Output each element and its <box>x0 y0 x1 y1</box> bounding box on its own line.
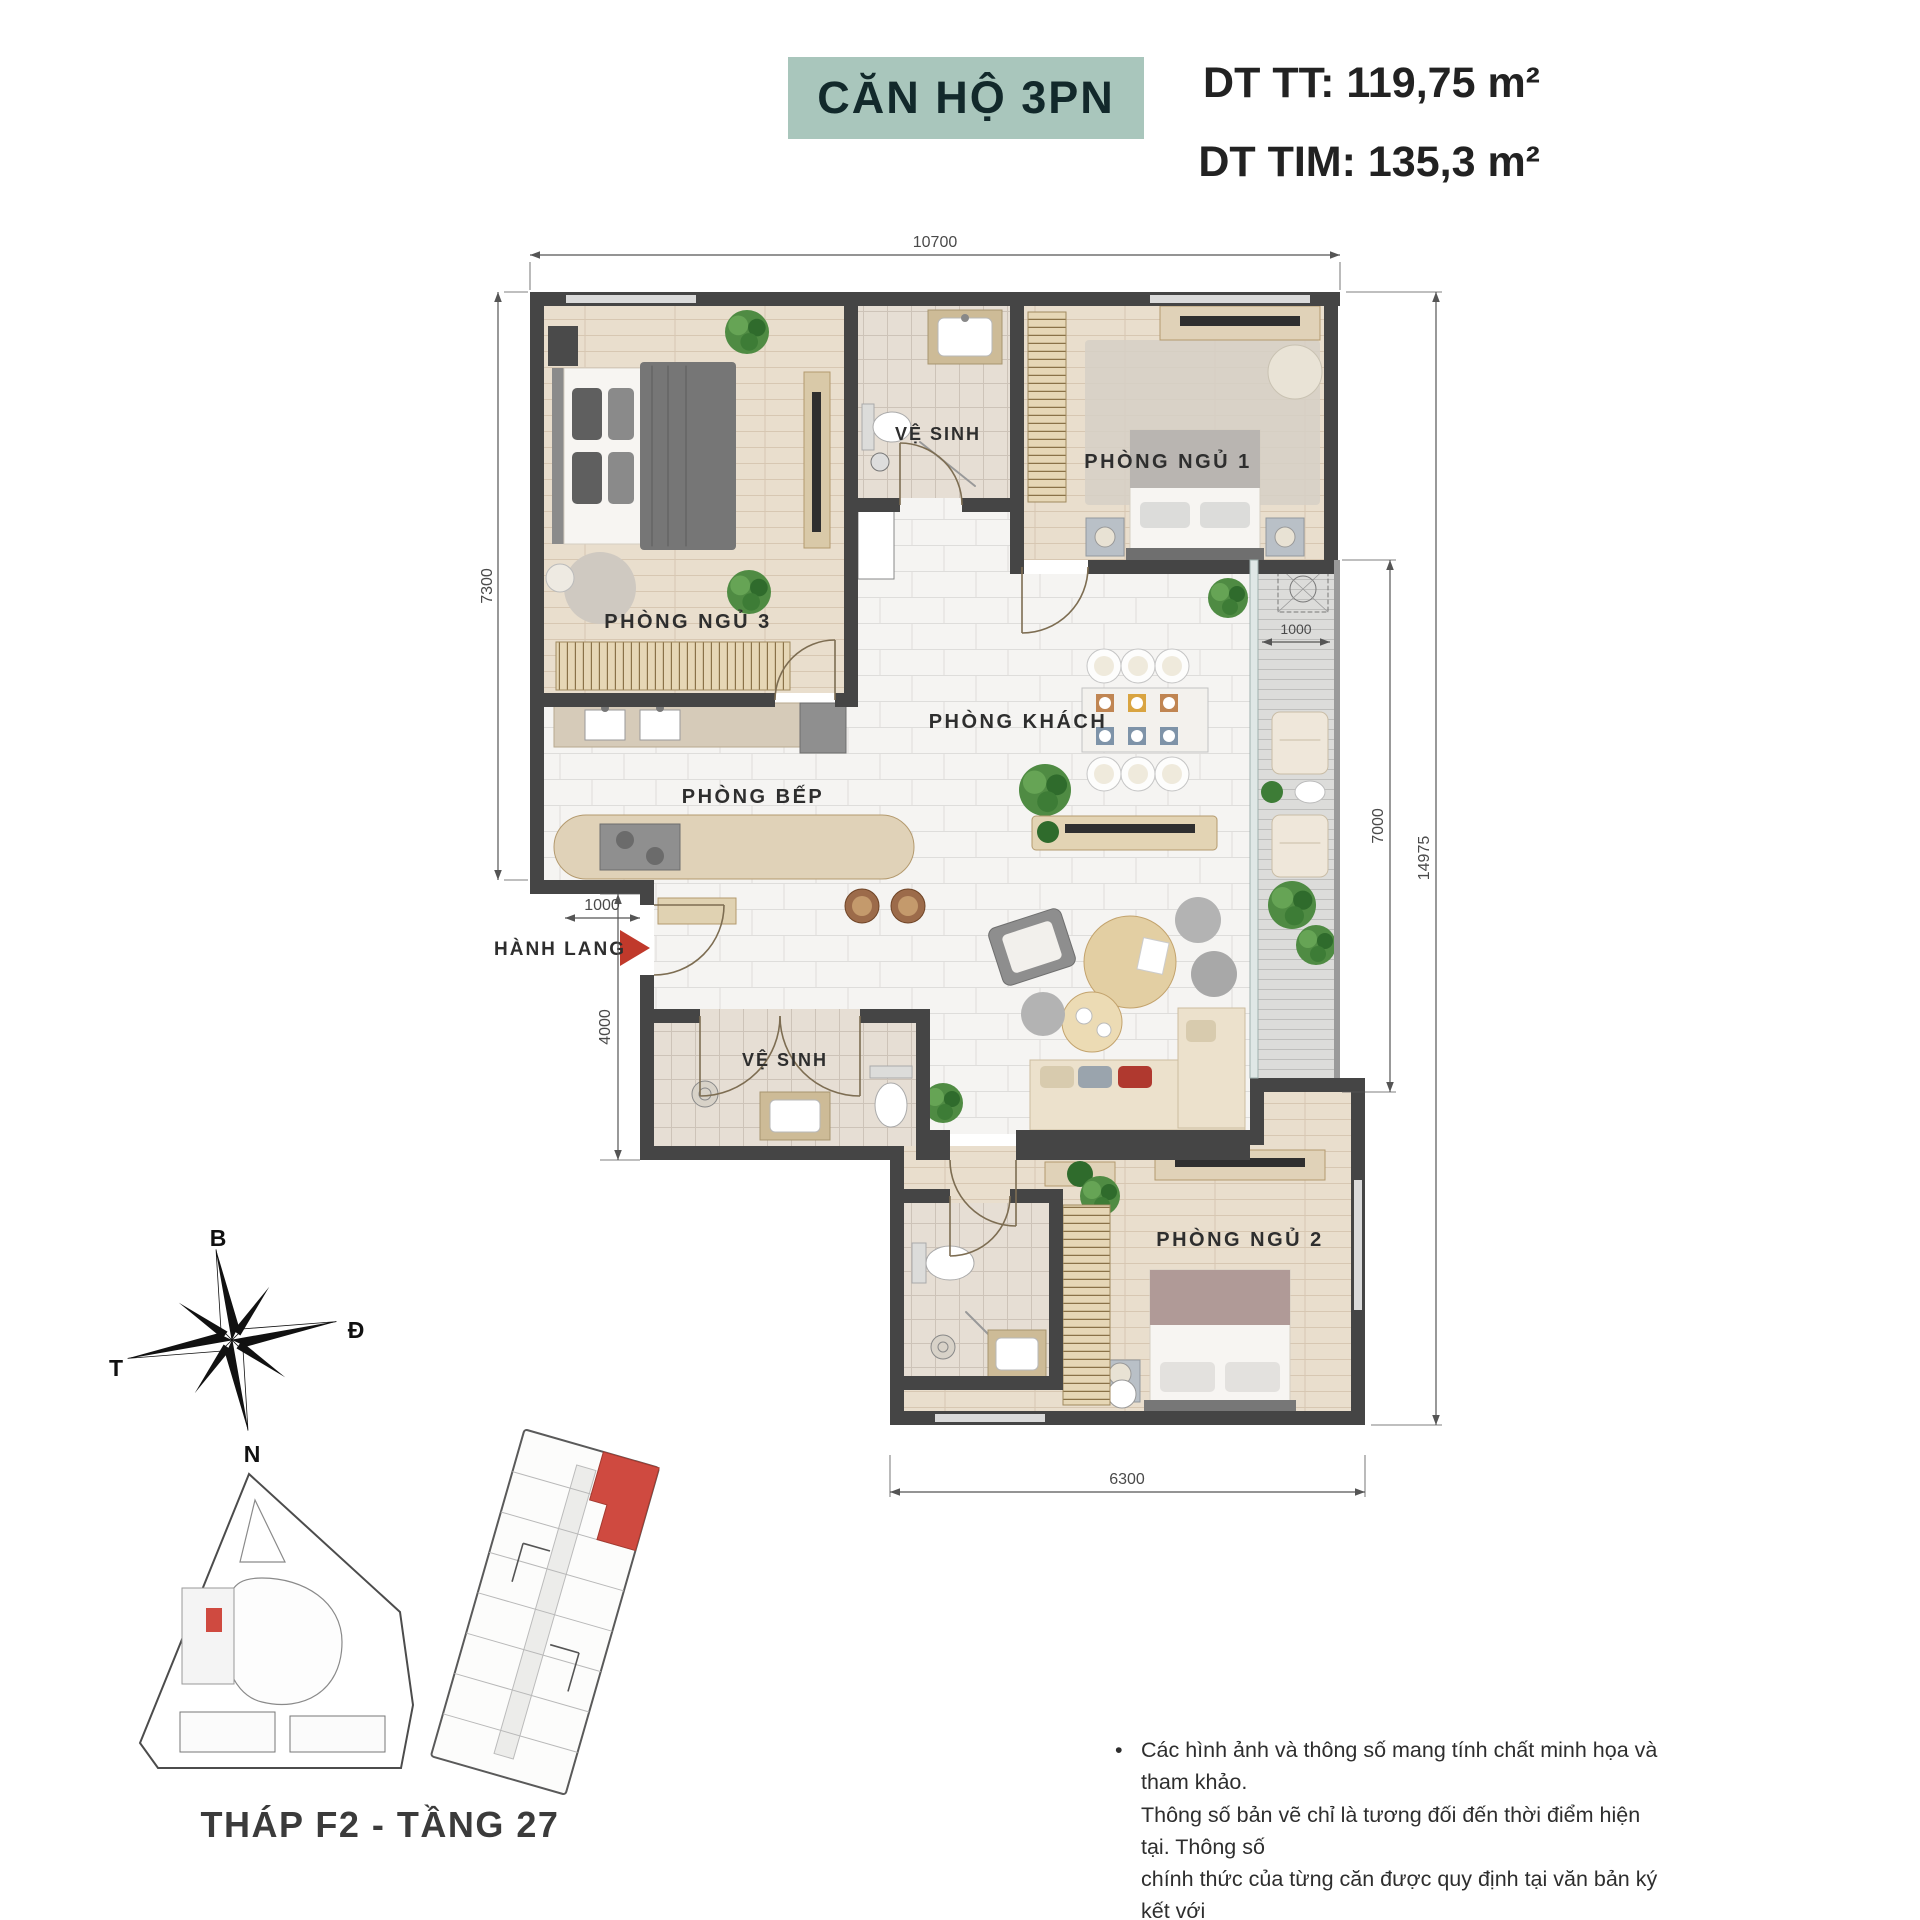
fridge <box>800 703 846 753</box>
sink-basin <box>996 1338 1038 1370</box>
burner <box>646 847 664 865</box>
label-bathroom2: VỆ SINH <box>742 1049 828 1070</box>
wall-art <box>548 326 578 366</box>
toilet-tank <box>862 404 874 450</box>
shower-drain <box>931 1335 955 1359</box>
plant <box>1208 578 1248 618</box>
disclaimer-text: Các hình ảnh và thông số mang tính chất … <box>1141 1734 1660 1920</box>
compass: B Đ T N <box>109 1225 364 1467</box>
pouf <box>1021 992 1065 1036</box>
wall-ensuite-bottom <box>904 1376 1063 1390</box>
wall-ensuite-right <box>1049 1189 1063 1390</box>
plant <box>727 570 771 614</box>
label-bedroom2: PHÒNG NGỦ 2 <box>1156 1227 1324 1251</box>
label-bedroom1: PHÒNG NGỦ 1 <box>1084 449 1252 473</box>
pillow <box>1078 1066 1112 1088</box>
bed1-headboard <box>1126 548 1264 560</box>
dim-balcony: 1000 <box>1280 621 1311 637</box>
tv <box>812 392 821 532</box>
compass-east: Đ <box>348 1317 365 1343</box>
wall-jog <box>1250 1078 1264 1145</box>
dim-left-upper: 7300 <box>479 568 496 604</box>
dim-top: 10700 <box>913 234 958 251</box>
wall-left-upper <box>530 292 544 894</box>
compass-rose <box>112 1231 353 1449</box>
toilet-tank <box>870 1066 912 1078</box>
pillow <box>1160 1362 1215 1392</box>
pouf <box>1191 951 1237 997</box>
side-table <box>1062 992 1122 1052</box>
bed1-wardrobe <box>1028 312 1066 502</box>
site-unit-highlight <box>206 1608 222 1632</box>
bed2-headboard <box>1144 1400 1296 1411</box>
floor-plan-drawing: PHÒNG NGỦ 3 VỆ SINH PHÒNG NGỦ 1 PHÒNG KH… <box>0 0 1920 1920</box>
wall-bed2-left <box>890 1146 904 1425</box>
plant <box>1268 881 1316 929</box>
cooktop <box>600 824 680 870</box>
page: CĂN HỘ 3PN DT TT: 119,75 m² DT TIM: 135,… <box>0 0 1920 1920</box>
dim-left-lower: 4000 <box>597 1009 614 1045</box>
site-building <box>180 1712 275 1752</box>
label-living: PHÒNG KHÁCH <box>929 709 1108 733</box>
pillow <box>1200 502 1250 528</box>
pillow <box>572 388 602 440</box>
kitchen-sink <box>640 710 680 740</box>
shaft <box>858 507 894 579</box>
dim-bottom: 6300 <box>1109 1471 1145 1488</box>
kitchen-sink <box>585 710 625 740</box>
compass-south: N <box>244 1441 261 1467</box>
disclaimer-line: chính thức của từng căn được quy định tạ… <box>1141 1863 1660 1920</box>
dim-left-hall: 1000 <box>584 897 620 914</box>
wall-left-lower <box>640 975 654 1160</box>
pillow <box>608 388 634 440</box>
pillow <box>1225 1362 1280 1392</box>
window <box>1150 295 1310 303</box>
bed3-lamp <box>546 564 574 592</box>
wall-bed3-right <box>844 292 858 707</box>
wall-bed3-bottom <box>835 693 858 707</box>
balcony-railing <box>1334 560 1340 1078</box>
site-plan <box>140 1429 659 1794</box>
plate <box>1076 1008 1092 1024</box>
wall-bottom-left <box>640 1146 904 1160</box>
disclaimer-bullet: • <box>1115 1734 1141 1920</box>
lounge-chair <box>1272 712 1328 774</box>
bed3-wardrobe <box>556 642 790 690</box>
faucet <box>961 314 969 322</box>
disclaimer-line: Thông số bản vẽ chỉ là tương đối đến thờ… <box>1141 1799 1660 1864</box>
window <box>1354 1180 1362 1310</box>
lounge-chair <box>1272 815 1328 877</box>
pillow <box>608 452 634 504</box>
window <box>566 295 696 303</box>
wall-bed3-bottom <box>544 693 775 707</box>
wall-bed1-bottom <box>1088 560 1338 574</box>
disclaimer: • Các hình ảnh và thông số mang tính chấ… <box>1115 1734 1660 1920</box>
bed2-blanket <box>1150 1270 1290 1325</box>
pillow <box>1140 502 1190 528</box>
wall-sofa <box>930 1130 950 1160</box>
label-bathroom1: VỆ SINH <box>895 423 981 444</box>
stool-seat <box>898 896 918 916</box>
compass-west: T <box>109 1355 123 1381</box>
dim-right-living: 7000 <box>1370 808 1387 844</box>
pillow <box>1040 1066 1074 1088</box>
tower-plate <box>431 1429 659 1794</box>
stool-seat <box>852 896 872 916</box>
wall-sofa <box>1016 1130 1250 1160</box>
decor-tray <box>1108 1380 1136 1408</box>
tv <box>1180 316 1300 326</box>
plant <box>1019 764 1071 816</box>
locator-caption: THÁP F2 - TẦNG 27 <box>170 1804 590 1846</box>
wall-balcony-bottom <box>1250 1078 1365 1092</box>
compass-north: B <box>210 1225 227 1251</box>
sink-basin <box>938 318 992 356</box>
wall-bath1-right <box>1010 292 1024 574</box>
plate <box>1097 1023 1111 1037</box>
plant <box>1296 925 1336 965</box>
dim-right-total: 14975 <box>1416 836 1433 881</box>
balcony-glass-wall <box>1250 560 1258 1078</box>
lamp <box>1275 527 1295 547</box>
sink-basin <box>770 1100 820 1132</box>
toilet-bowl <box>875 1083 907 1127</box>
site-building <box>290 1716 385 1752</box>
wall-bath2-top <box>654 1009 700 1023</box>
balcony-table <box>1295 781 1325 803</box>
wall-left-lower <box>640 880 654 905</box>
pouf <box>1268 345 1322 399</box>
toilet-tank <box>912 1243 926 1283</box>
plant <box>725 310 769 354</box>
pouf <box>1175 897 1221 943</box>
bed2-wardrobe <box>1063 1205 1110 1405</box>
lamp <box>1095 527 1115 547</box>
wall-bath2-right <box>916 1009 930 1160</box>
pillow <box>1186 1020 1216 1042</box>
site-tower-block <box>182 1588 234 1684</box>
bed3-blanket <box>640 362 736 550</box>
window <box>935 1414 1045 1422</box>
burner <box>616 831 634 849</box>
wall-bath1-bottom <box>962 498 1010 512</box>
shower-head <box>871 453 889 471</box>
plant <box>1261 781 1283 803</box>
wall-step <box>530 880 654 894</box>
wall-bed1-right <box>1324 292 1338 560</box>
pillow <box>572 452 602 504</box>
label-bedroom3: PHÒNG NGỦ 3 <box>604 609 772 633</box>
pot-plant <box>1037 821 1059 843</box>
wall-ensuite-top <box>904 1189 950 1203</box>
label-hallway: HÀNH LANG <box>494 938 626 960</box>
pillow-red <box>1118 1066 1152 1088</box>
tv <box>1065 824 1195 833</box>
disclaimer-line: Các hình ảnh và thông số mang tính chất … <box>1141 1734 1660 1799</box>
label-kitchen: PHÒNG BẾP <box>682 784 825 808</box>
bed3-headboard <box>552 368 564 544</box>
